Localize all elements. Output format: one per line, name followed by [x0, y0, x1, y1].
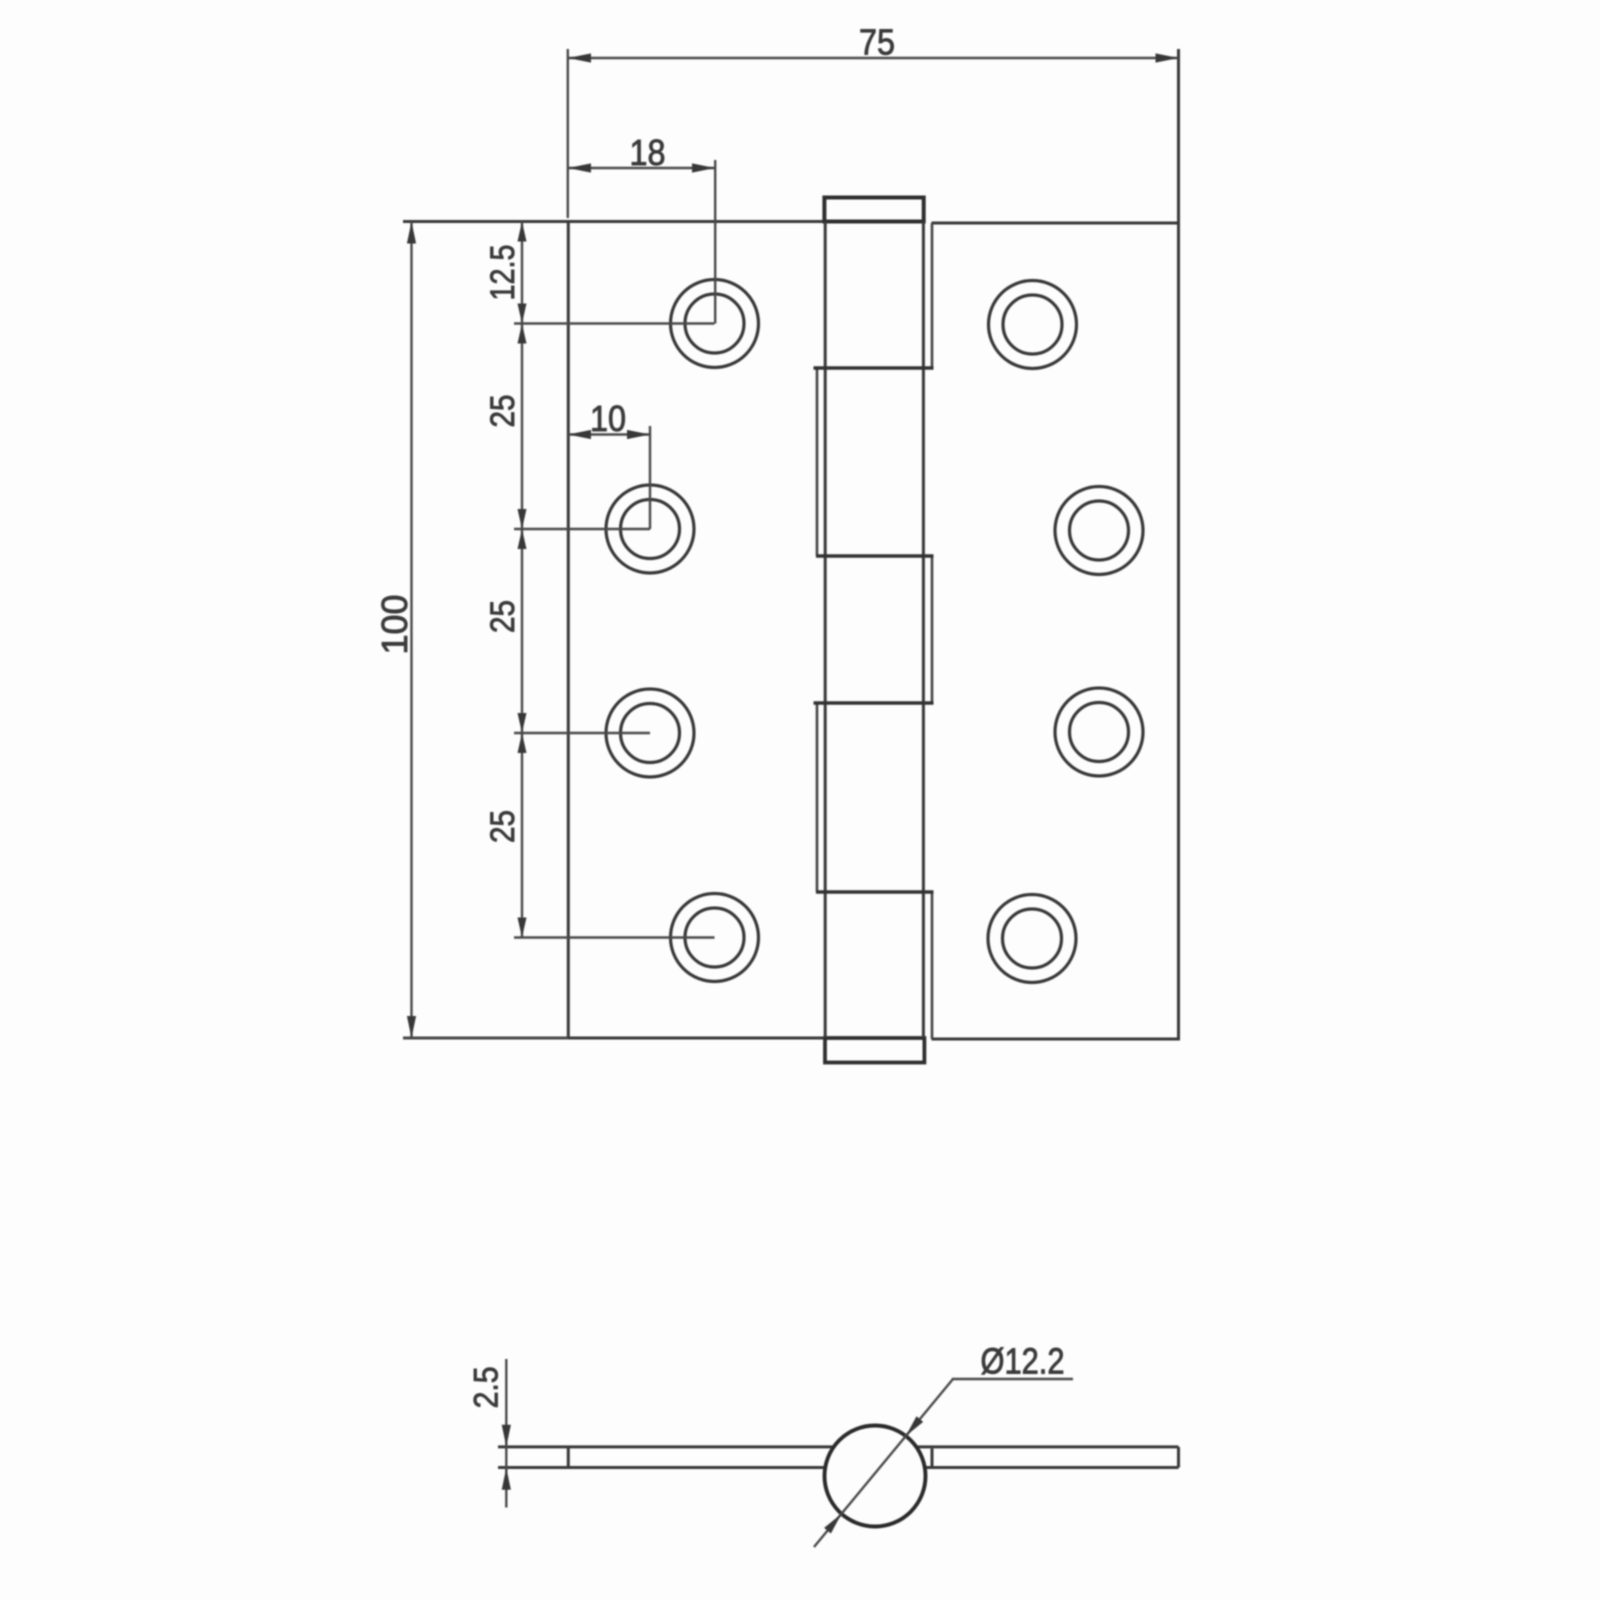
svg-text:2.5: 2.5 — [468, 1366, 506, 1408]
svg-text:25: 25 — [484, 600, 522, 633]
svg-text:25: 25 — [484, 810, 522, 843]
svg-text:75: 75 — [859, 22, 895, 63]
svg-text:18: 18 — [630, 132, 666, 173]
svg-text:10: 10 — [590, 398, 626, 439]
svg-text:25: 25 — [484, 395, 522, 428]
svg-text:Ø12.2: Ø12.2 — [981, 1341, 1065, 1382]
svg-text:12.5: 12.5 — [484, 245, 522, 301]
svg-text:100: 100 — [374, 595, 415, 655]
